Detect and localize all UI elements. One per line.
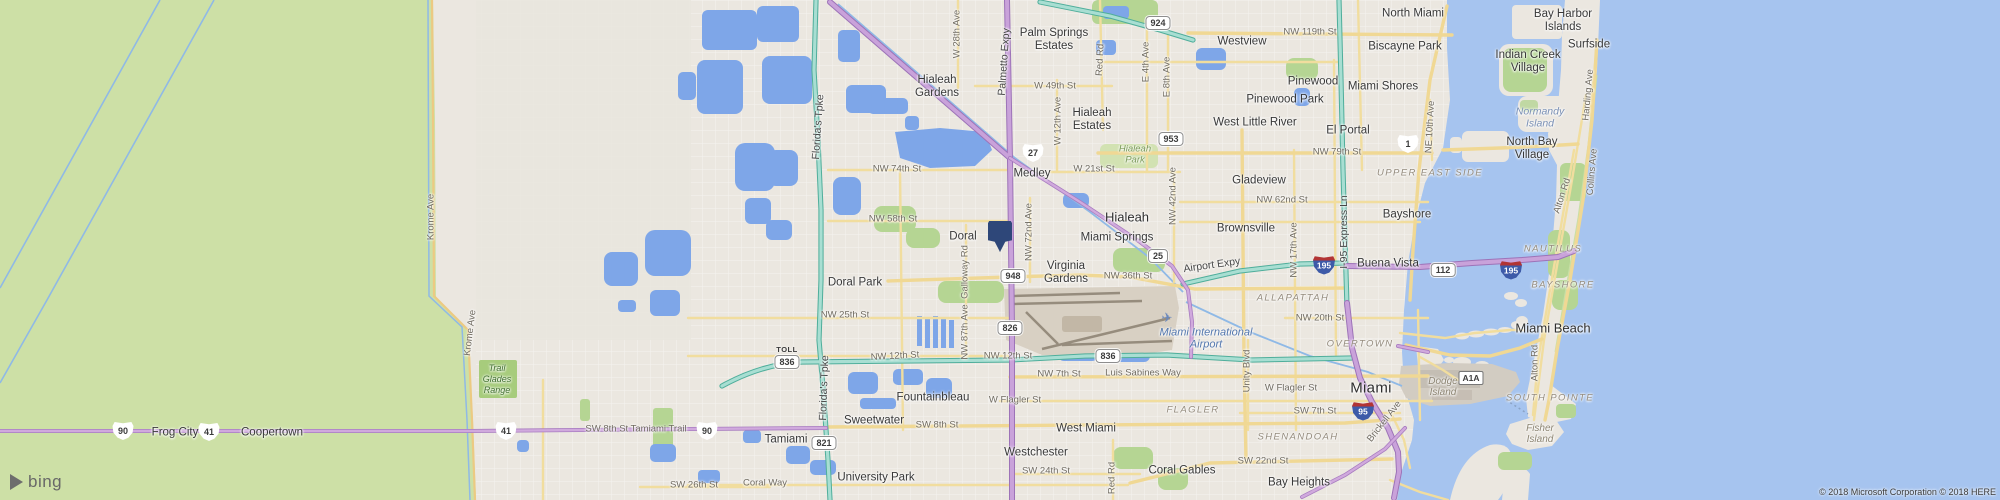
map-canvas[interactable]: Palm Springs EstatesHialeah GardensHiale…	[0, 0, 2000, 500]
trail-glades-range-area	[479, 360, 517, 398]
biscayne-bay-water	[1397, 0, 2000, 500]
bing-logo[interactable]: bing	[10, 472, 62, 492]
miami-international-airport-area	[1004, 286, 1179, 356]
bing-logo-text: bing	[28, 472, 62, 492]
bing-logo-icon	[10, 474, 23, 490]
copyright-text: © 2018 Microsoft Corporation © 2018 HERE	[1819, 487, 1996, 497]
